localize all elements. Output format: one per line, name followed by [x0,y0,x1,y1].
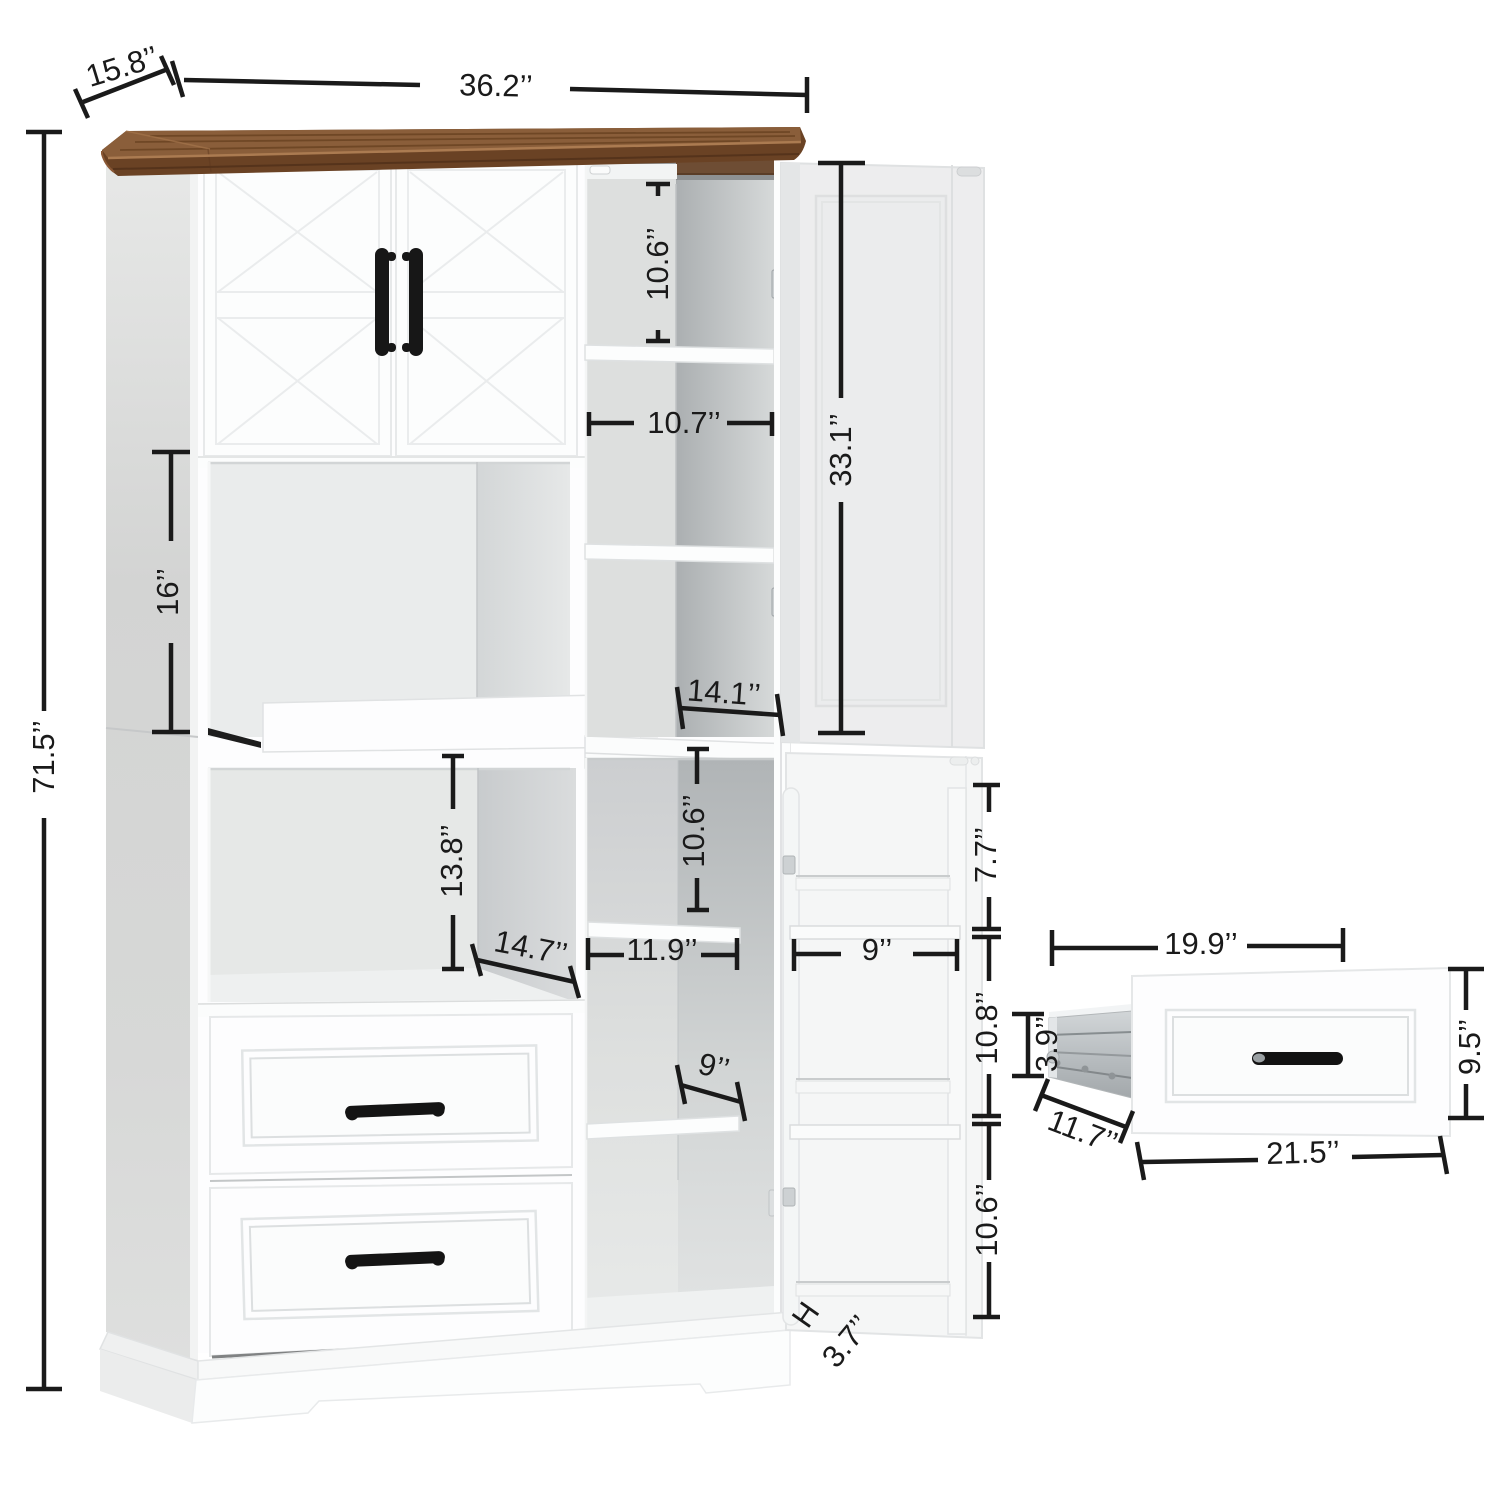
svg-text:19.9’’: 19.9’’ [1164,926,1238,961]
svg-text:36.2’’: 36.2’’ [459,67,533,104]
svg-text:3.9’’: 3.9’’ [1029,1016,1064,1072]
svg-text:71.5’’: 71.5’’ [26,720,61,794]
svg-text:10.8’’: 10.8’’ [969,991,1004,1065]
svg-text:14.1’’: 14.1’’ [686,672,762,712]
svg-text:10.7’’: 10.7’’ [647,405,721,440]
svg-text:10.6’’: 10.6’’ [640,227,675,301]
svg-text:21.5’’: 21.5’’ [1266,1134,1340,1171]
svg-text:9’’: 9’’ [862,932,892,967]
svg-text:33.1’’: 33.1’’ [823,413,858,487]
svg-text:13.8’’: 13.8’’ [434,824,469,898]
svg-text:9.5’’: 9.5’’ [1452,1019,1487,1075]
svg-text:10.6’’: 10.6’’ [676,794,711,868]
svg-text:10.6’’: 10.6’’ [969,1183,1004,1257]
svg-text:7.7’’: 7.7’’ [968,827,1003,883]
svg-text:11.9’’: 11.9’’ [626,932,697,967]
svg-text:16’’: 16’’ [150,568,185,616]
